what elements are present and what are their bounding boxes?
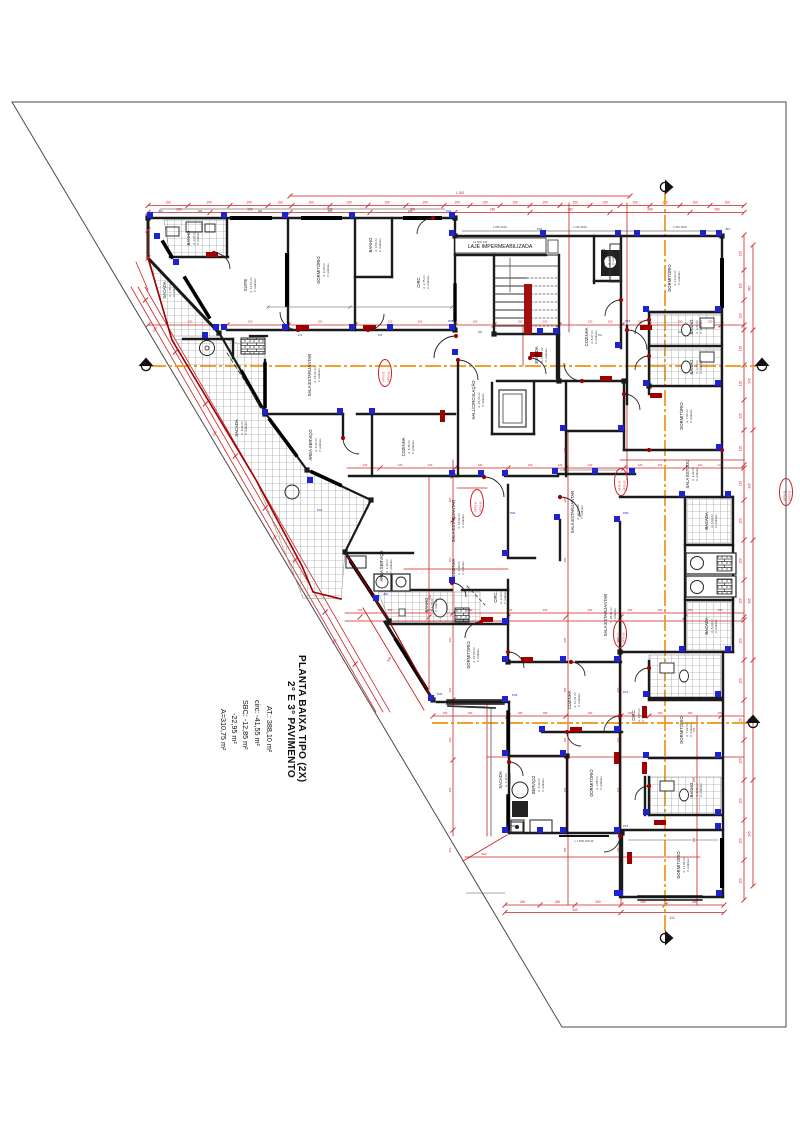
svg-text:285: 285 [563, 497, 567, 502]
svg-text:P. cerâmico: P. cerâmico [196, 231, 200, 245]
svg-text:440: 440 [572, 908, 578, 912]
svg-text:120: 120 [739, 346, 743, 352]
svg-text:120: 120 [588, 463, 593, 467]
svg-text:260: 260 [588, 608, 593, 612]
svg-text:150: 150 [422, 201, 428, 205]
svg-text:P26: P26 [437, 692, 443, 696]
svg-text:150: 150 [542, 201, 548, 205]
svg-text:285: 285 [563, 637, 567, 642]
svg-text:DORMITÓRIO: DORMITÓRIO [316, 256, 321, 284]
svg-text:150: 150 [473, 320, 478, 324]
svg-text:P. cerâmico: P. cerâmico [695, 467, 699, 481]
svg-text:180: 180 [628, 711, 633, 715]
svg-text:P15: P15 [625, 319, 631, 323]
svg-text:APTO 01: APTO 01 [618, 480, 622, 491]
svg-text:280: 280 [647, 208, 653, 212]
svg-text:A. 3,50 m²: A. 3,50 m² [374, 238, 378, 252]
svg-text:150: 150 [248, 320, 253, 324]
svg-text:285: 285 [563, 737, 567, 742]
svg-text:A. 1,36 m²: A. 1,36 m² [504, 773, 508, 787]
svg-text:1.300 12/18: 1.300 12/18 [673, 225, 687, 229]
svg-text:345: 345 [748, 598, 752, 604]
svg-text:DORMITÓRIO: DORMITÓRIO [679, 716, 684, 744]
svg-text:P. cerâmico: P. cerâmico [699, 783, 703, 797]
svg-text:P. cerâmico: P. cerâmico [481, 393, 485, 407]
svg-text:P. cerâmico: P. cerâmico [677, 271, 681, 285]
svg-text:1.050 12/18: 1.050 12/18 [493, 225, 507, 229]
svg-text:P. cerâmico: P. cerâmico [699, 360, 703, 374]
svg-text:245: 245 [408, 209, 413, 213]
svg-text:150: 150 [638, 320, 643, 324]
svg-text:P. cerâmico: P. cerâmico [580, 505, 584, 519]
svg-text:DORMITÓRIO: DORMITÓRIO [667, 264, 672, 292]
svg-text:260: 260 [658, 608, 663, 612]
svg-text:P. cerâmico: P. cerâmico [244, 421, 248, 435]
svg-text:DORMITÓRIO: DORMITÓRIO [589, 769, 594, 797]
svg-text:285: 285 [563, 847, 567, 852]
svg-text:P. cerâmico: P. cerâmico [508, 773, 512, 787]
svg-text:150: 150 [724, 201, 730, 205]
svg-text:SACADA: SACADA [162, 281, 167, 298]
svg-text:280: 280 [714, 208, 720, 212]
svg-text:150: 150 [418, 320, 423, 324]
svg-text:260: 260 [616, 737, 620, 742]
svg-text:A. 11,61 m²: A. 11,61 m² [573, 692, 577, 707]
svg-text:APTO 02: APTO 02 [788, 490, 792, 501]
svg-text:A. 10,50 m²: A. 10,50 m² [472, 647, 476, 663]
svg-text:A. 5,23 m²: A. 5,23 m² [710, 619, 714, 633]
svg-text:SALA ESTUDO: SALA ESTUDO [685, 459, 690, 489]
svg-text:120: 120 [478, 463, 483, 467]
svg-text:120: 120 [718, 463, 723, 467]
svg-text:120: 120 [558, 463, 563, 467]
svg-text:120: 120 [739, 598, 743, 604]
svg-text:150: 150 [308, 201, 314, 205]
svg-text:260: 260 [468, 608, 473, 612]
svg-text:A. 7,02 m²: A. 7,02 m² [685, 409, 689, 423]
svg-text:SUITE: SUITE [243, 279, 248, 292]
svg-text:A. 12,53 m²: A. 12,53 m² [249, 277, 253, 293]
svg-text:P. cerâmico: P. cerâmico [461, 514, 465, 528]
svg-text:345: 345 [748, 483, 752, 489]
svg-text:150: 150 [692, 201, 698, 205]
svg-text:150: 150 [588, 320, 593, 324]
svg-text:-22,95 m²: -22,95 m² [230, 713, 239, 744]
svg-text:120: 120 [739, 381, 743, 387]
svg-text:260: 260 [358, 608, 363, 612]
svg-text:A. 4,02 m²: A. 4,02 m² [314, 438, 318, 452]
svg-text:SERVIÇO: SERVIÇO [601, 248, 606, 268]
svg-text:P06: P06 [510, 824, 516, 828]
svg-text:BANHO: BANHO [368, 237, 373, 253]
svg-text:300: 300 [448, 637, 452, 642]
svg-text:P. cerâmico: P. cerâmico [476, 648, 480, 662]
svg-text:APTO 02: APTO 02 [622, 632, 626, 643]
svg-text:180: 180 [518, 711, 523, 715]
svg-text:A. 3,51 m²: A. 3,51 m² [192, 231, 196, 245]
svg-text:120: 120 [363, 463, 368, 467]
svg-text:120: 120 [739, 758, 743, 764]
svg-text:150: 150 [384, 201, 390, 205]
svg-text:A. 25,06 m²: A. 25,06 m² [609, 607, 613, 623]
svg-text:120: 120 [739, 838, 743, 844]
svg-text:A. 12,08 m²: A. 12,08 m² [682, 857, 686, 873]
svg-text:P. cerâmico: P. cerâmico [541, 778, 545, 792]
svg-text:P13: P13 [623, 690, 629, 694]
svg-text:P. cerâmico: P. cerâmico [172, 283, 176, 297]
svg-text:260: 260 [388, 608, 393, 612]
svg-text:P04: P04 [510, 511, 516, 515]
svg-text:300: 300 [448, 497, 452, 502]
svg-text:BACADA: BACADA [704, 512, 709, 529]
svg-text:255: 255 [328, 209, 333, 213]
svg-text:300: 300 [448, 847, 452, 852]
svg-text:P. cerâmico: P. cerâmico [326, 263, 330, 277]
svg-text:J.1 500/ 100: J.1 500/ 100 [473, 240, 488, 244]
svg-text:150: 150 [678, 320, 683, 324]
svg-text:120: 120 [739, 413, 743, 419]
svg-text:120: 120 [638, 463, 643, 467]
svg-text:180: 180 [688, 711, 693, 715]
svg-text:150: 150 [632, 201, 638, 205]
svg-text:ÁREA SERVIÇO: ÁREA SERVIÇO [308, 429, 313, 461]
svg-text:260: 260 [616, 687, 620, 692]
svg-text:150: 150 [346, 201, 352, 205]
svg-text:300: 300 [448, 557, 452, 562]
svg-text:APTO 02: APTO 02 [479, 501, 483, 512]
svg-text:ÁREA SERVIÇO: ÁREA SERVIÇO [379, 550, 384, 582]
svg-text:120: 120 [698, 463, 703, 467]
svg-text:CIRC.: CIRC. [416, 276, 421, 287]
svg-text:P. cerâmico: P. cerâmico [699, 320, 703, 334]
svg-text:PLANTA BAIXA TIPO (2X): PLANTA BAIXA TIPO (2X) [296, 655, 307, 782]
svg-text:circ: -41,55 m²: circ: -41,55 m² [253, 700, 262, 747]
svg-text:A. 5,35 m²: A. 5,35 m² [407, 440, 411, 454]
svg-text:120: 120 [739, 558, 743, 564]
svg-text:COZINHA: COZINHA [401, 437, 406, 456]
svg-text:A. 4,02 m²: A. 4,02 m² [537, 778, 541, 792]
svg-text:260: 260 [616, 637, 620, 642]
svg-text:150: 150 [388, 320, 393, 324]
svg-text:SALA ESTAR/JANTAR: SALA ESTAR/JANTAR [603, 594, 608, 636]
svg-text:P01: P01 [446, 209, 452, 213]
svg-text:195: 195 [692, 727, 696, 732]
svg-text:SACADA: SACADA [498, 771, 503, 788]
svg-text:120: 120 [739, 798, 743, 804]
svg-text:260: 260 [508, 608, 513, 612]
svg-text:A. 4,92 m²: A. 4,92 m² [691, 467, 695, 481]
svg-text:A. 21,10 m²: A. 21,10 m² [477, 392, 481, 408]
svg-text:150: 150 [318, 320, 323, 324]
svg-text:A. 6,08 m²: A. 6,08 m² [595, 776, 599, 790]
svg-text:BANHO: BANHO [689, 782, 694, 798]
svg-text:P09: P09 [623, 511, 629, 515]
svg-text:P. cerâmico: P. cerâmico [544, 348, 548, 362]
svg-text:260: 260 [543, 608, 548, 612]
svg-text:SALA ESTAR/JANTAR: SALA ESTAR/JANTAR [307, 354, 312, 396]
svg-text:ESCADA: ESCADA [534, 346, 539, 363]
svg-text:A. 7,02 m²: A. 7,02 m² [685, 723, 689, 737]
svg-text:P. cerâmico: P. cerâmico [253, 278, 257, 292]
svg-text:P. cerâmico: P. cerâmico [613, 608, 617, 622]
svg-text:285: 285 [563, 687, 567, 692]
svg-text:P. cerâmico: P. cerâmico [317, 368, 321, 382]
svg-text:500: 500 [481, 852, 486, 856]
svg-text:A. 1,40 m²: A. 1,40 m² [385, 559, 389, 573]
svg-text:COZINHA: COZINHA [567, 690, 572, 709]
svg-text:120: 120 [739, 446, 743, 452]
svg-text:A. 4,06 m²: A. 4,06 m² [637, 708, 641, 722]
svg-text:260: 260 [628, 608, 633, 612]
svg-text:260: 260 [616, 847, 620, 852]
svg-text:120: 120 [739, 481, 743, 487]
svg-text:150: 150 [277, 201, 283, 205]
svg-text:345: 345 [748, 286, 752, 292]
svg-text:P. cerâmico: P. cerâmico [411, 440, 415, 454]
svg-text:300: 300 [448, 737, 452, 742]
svg-text:BANHO: BANHO [689, 319, 694, 335]
svg-text:380: 380 [258, 209, 263, 213]
svg-text:260: 260 [520, 900, 526, 904]
svg-text:P20: P20 [537, 227, 543, 231]
svg-text:280: 280 [490, 208, 496, 212]
svg-text:A=310,75 m²: A=310,75 m² [219, 709, 228, 751]
svg-text:A. 3,40 m²: A. 3,40 m² [607, 251, 611, 265]
svg-text:160: 160 [478, 330, 483, 334]
svg-text:120: 120 [739, 313, 743, 319]
svg-text:300: 300 [448, 787, 452, 792]
svg-text:155: 155 [378, 333, 383, 337]
svg-text:120: 120 [739, 678, 743, 684]
svg-text:P22: P22 [317, 508, 323, 512]
svg-text:COZINHA: COZINHA [584, 327, 589, 346]
svg-text:180: 180 [658, 711, 663, 715]
svg-text:285: 285 [563, 557, 567, 562]
svg-text:260: 260 [688, 608, 693, 612]
svg-text:P. cerâmico: P. cerâmico [611, 251, 615, 265]
svg-text:A. 8,97 m²: A. 8,97 m² [590, 330, 594, 344]
svg-text:1.300: 1.300 [456, 191, 465, 195]
svg-text:HALL/CIRCULAÇÃO: HALL/CIRCULAÇÃO [471, 380, 476, 420]
svg-text:150: 150 [206, 201, 212, 205]
svg-text:A. 11,90 m²: A. 11,90 m² [540, 347, 544, 362]
svg-text:P. cerâmico: P. cerâmico [714, 619, 718, 633]
svg-text:345: 345 [748, 831, 752, 837]
svg-text:CIRC.: CIRC. [493, 591, 498, 602]
svg-text:120: 120 [739, 518, 743, 524]
svg-text:P. cerâmico: P. cerâmico [686, 858, 690, 872]
svg-text:DORMITÓRIO: DORMITÓRIO [676, 851, 681, 879]
svg-text:345: 345 [748, 378, 752, 384]
svg-text:A. 3,44 m²: A. 3,44 m² [695, 360, 699, 374]
svg-text:180: 180 [198, 209, 203, 213]
svg-text:P. cerâmico: P. cerâmico [434, 598, 438, 612]
svg-text:P08: P08 [448, 319, 454, 323]
svg-text:A. 4,03 m²: A. 4,03 m² [710, 514, 714, 528]
svg-text:A. 3,10 m²: A. 3,10 m² [499, 590, 503, 604]
svg-text:DORMITÓRIO: DORMITÓRIO [466, 641, 471, 669]
svg-text:2° E 3° PAVIMENTO: 2° E 3° PAVIMENTO [285, 681, 296, 778]
svg-text:150: 150 [454, 201, 460, 205]
svg-text:P. cerâmico: P. cerâmico [461, 561, 465, 575]
svg-text:APTO 01: APTO 01 [474, 501, 478, 512]
svg-text:P11: P11 [623, 824, 628, 828]
svg-text:BACADA: BACADA [704, 617, 709, 634]
svg-text:150: 150 [608, 320, 613, 324]
svg-text:150: 150 [246, 201, 252, 205]
svg-text:260: 260 [616, 787, 620, 792]
svg-text:P. cerâmico: P. cerâmico [503, 590, 507, 604]
svg-text:151: 151 [598, 333, 603, 337]
svg-text:150: 150 [543, 320, 548, 324]
svg-text:120: 120 [398, 463, 403, 467]
svg-text:260: 260 [428, 608, 433, 612]
svg-text:180: 180 [543, 711, 548, 715]
svg-text:SACADA: SACADA [234, 419, 239, 436]
svg-text:120: 120 [658, 463, 663, 467]
svg-text:DORMITÓRIO: DORMITÓRIO [679, 402, 684, 430]
svg-text:120: 120 [528, 463, 533, 467]
svg-text:120: 120 [739, 251, 743, 257]
svg-text:APTO 01: APTO 01 [382, 371, 386, 382]
svg-text:A. 3,44 m²: A. 3,44 m² [695, 320, 699, 334]
svg-text:A. 12,03 m²: A. 12,03 m² [673, 270, 677, 286]
svg-text:A. 9,22 m²: A. 9,22 m² [240, 421, 244, 435]
svg-text:285: 285 [563, 447, 567, 452]
svg-text:SALA ESTAR/JANTAR: SALA ESTAR/JANTAR [451, 500, 456, 542]
svg-text:150: 150 [602, 201, 608, 205]
svg-text:150: 150 [165, 201, 171, 205]
svg-text:150: 150 [512, 201, 518, 205]
svg-text:180: 180 [588, 711, 593, 715]
svg-text:A. 4,15 m²: A. 4,15 m² [168, 283, 172, 297]
svg-text:P28: P28 [512, 693, 518, 697]
svg-text:A. 18,02 m²: A. 18,02 m² [457, 513, 461, 529]
svg-text:P. cerâmico: P. cerâmico [714, 514, 718, 528]
svg-text:P. cerâmico: P. cerâmico [389, 559, 393, 573]
svg-text:P. cerâmico: P. cerâmico [378, 238, 382, 252]
svg-text:120: 120 [428, 463, 433, 467]
svg-text:APTO 01: APTO 01 [783, 490, 787, 501]
svg-text:180: 180 [443, 711, 448, 715]
svg-text:180: 180 [468, 711, 473, 715]
svg-text:J04: J04 [725, 227, 730, 231]
svg-text:LAJE IMPERMEABILIZADA: LAJE IMPERMEABILIZADA [468, 244, 533, 250]
svg-text:A. 2,75 m²: A. 2,75 m² [422, 275, 426, 289]
svg-text:150: 150 [518, 320, 523, 324]
svg-text:280: 280 [567, 208, 573, 212]
svg-text:195: 195 [692, 777, 696, 782]
svg-text:P. cerâmico: P. cerâmico [641, 708, 645, 722]
svg-text:SBC: -12,85 m²: SBC: -12,85 m² [241, 700, 250, 750]
svg-text:J01: J01 [158, 209, 163, 213]
svg-text:A. 9,20 m²: A. 9,20 m² [322, 263, 326, 277]
svg-text:SALA ESTAR/JANTAR: SALA ESTAR/JANTAR [570, 491, 575, 533]
svg-text:BANHO: BANHO [689, 359, 694, 375]
svg-text:J06: J06 [383, 592, 388, 596]
svg-text:APTO 02: APTO 02 [623, 480, 627, 491]
svg-text:160: 160 [678, 330, 683, 334]
svg-text:L.1 500/ 100/ 90: L.1 500/ 100/ 90 [467, 705, 486, 709]
svg-text:P. cerâmico: P. cerâmico [426, 275, 430, 289]
svg-text:A. 3,71 m²: A. 3,71 m² [695, 783, 699, 797]
svg-text:150: 150 [708, 320, 713, 324]
svg-text:P. cerâmico: P. cerâmico [318, 438, 322, 452]
svg-text:P. cerâmico: P. cerâmico [599, 776, 603, 790]
svg-text:280: 280 [176, 208, 182, 212]
svg-text:L.1 500/ 220/ 90: L.1 500/ 220/ 90 [575, 839, 594, 843]
svg-text:SERVIÇO: SERVIÇO [531, 775, 536, 795]
svg-text:150: 150 [572, 201, 578, 205]
svg-text:120: 120 [739, 638, 743, 644]
svg-text:120: 120 [739, 878, 743, 884]
svg-text:APTO 02: APTO 02 [387, 371, 391, 382]
svg-text:A. 4,38 m²: A. 4,38 m² [457, 561, 461, 575]
svg-text:150: 150 [482, 201, 488, 205]
svg-text:AT.: 388,10 m²: AT.: 388,10 m² [265, 706, 274, 753]
svg-text:280: 280 [247, 208, 253, 212]
svg-text:260: 260 [555, 900, 561, 904]
svg-text:285: 285 [563, 787, 567, 792]
svg-text:180: 180 [718, 711, 723, 715]
svg-text:BANHO: BANHO [186, 230, 191, 246]
svg-text:260: 260 [718, 608, 723, 612]
svg-text:P. cerâmico: P. cerâmico [689, 409, 693, 423]
svg-text:300: 300 [448, 687, 452, 692]
svg-text:A. 18,22 m²: A. 18,22 m² [313, 367, 317, 383]
svg-text:A. 20,07 m²: A. 20,07 m² [576, 504, 580, 520]
svg-text:270: 270 [298, 333, 303, 337]
svg-text:1.150 12/18: 1.150 12/18 [573, 225, 587, 229]
svg-text:120: 120 [739, 283, 743, 289]
svg-text:150: 150 [188, 320, 193, 324]
svg-text:410: 410 [669, 916, 675, 920]
svg-text:260: 260 [595, 900, 601, 904]
svg-text:P. cerâmico: P. cerâmico [577, 693, 581, 707]
